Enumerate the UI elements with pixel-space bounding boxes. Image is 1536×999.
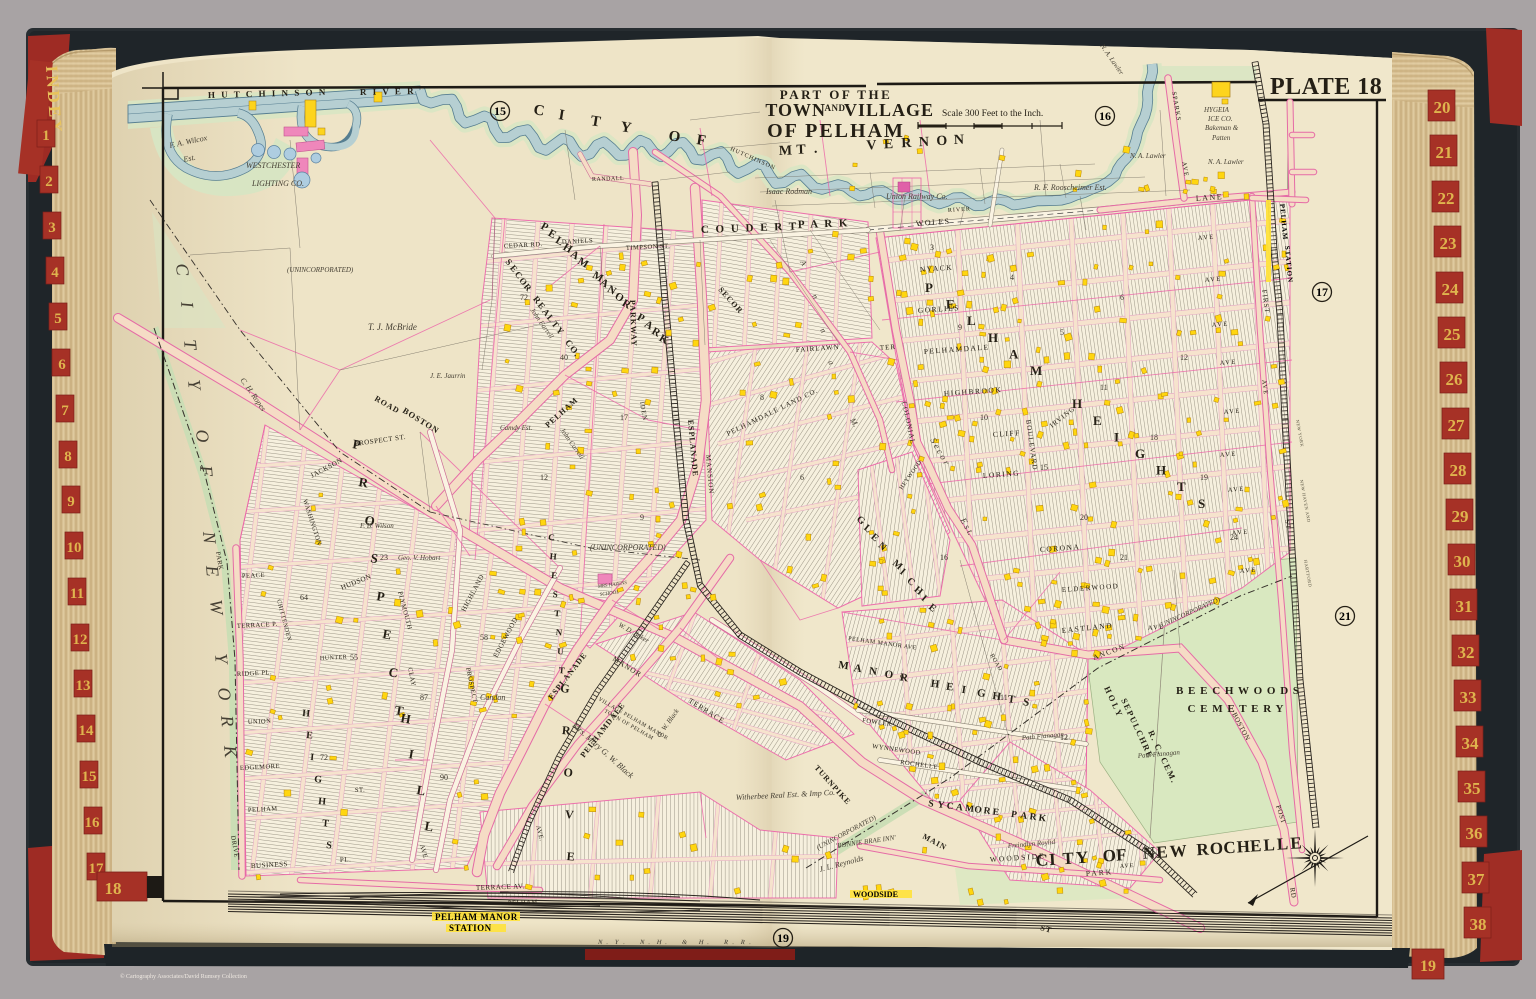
svg-text:AVE: AVE: [1205, 276, 1223, 284]
svg-text:AVE: AVE: [1232, 529, 1250, 537]
svg-text:AVE: AVE: [1220, 451, 1238, 459]
svg-text:4: 4: [51, 265, 59, 281]
svg-text:M: M: [1030, 363, 1042, 378]
svg-text:4: 4: [1010, 273, 1014, 282]
svg-text:A: A: [1009, 346, 1019, 361]
svg-text:36: 36: [1466, 824, 1483, 843]
svg-text:H: H: [1156, 463, 1166, 478]
svg-text:AVE: AVE: [1120, 863, 1135, 870]
svg-text:RANDALL: RANDALL: [592, 176, 624, 183]
svg-text:N: N: [954, 133, 965, 148]
svg-text:20: 20: [1434, 98, 1451, 117]
svg-text:L: L: [967, 313, 976, 328]
svg-text:R: R: [217, 714, 238, 728]
svg-text:PL.: PL.: [340, 855, 352, 864]
svg-text:10: 10: [67, 540, 82, 556]
svg-text:9: 9: [67, 494, 75, 510]
svg-text:26: 26: [1446, 370, 1463, 389]
svg-text:11: 11: [70, 586, 84, 602]
svg-text:I: I: [1114, 429, 1119, 444]
svg-text:8: 8: [760, 393, 764, 402]
svg-text:12: 12: [540, 473, 548, 482]
svg-text:O: O: [214, 687, 235, 702]
svg-text:15: 15: [82, 769, 97, 785]
svg-text:27: 27: [1448, 416, 1466, 435]
svg-text:3: 3: [48, 220, 56, 236]
svg-text:F. B. Wilson: F. B. Wilson: [359, 522, 394, 530]
svg-text:R. F. Rooscheimer Est.: R. F. Rooscheimer Est.: [1033, 183, 1107, 192]
svg-text:LIGHTING CO.: LIGHTING CO.: [251, 179, 304, 188]
svg-text:T: T: [796, 143, 807, 158]
svg-text:T: T: [1062, 849, 1075, 869]
svg-text:(UNINCORPORATED): (UNINCORPORATED): [287, 266, 354, 274]
svg-text:24: 24: [1442, 280, 1460, 299]
svg-text:17: 17: [620, 413, 628, 422]
svg-text:72: 72: [320, 753, 328, 762]
svg-text:H: H: [302, 708, 311, 720]
svg-text:9: 9: [958, 323, 962, 332]
svg-text:R I V E R: R I V E R: [360, 86, 416, 97]
svg-text:Scale 300 Feet to the Inch.: Scale 300 Feet to the Inch.: [942, 109, 1043, 119]
svg-text:10: 10: [980, 413, 988, 422]
svg-text:9: 9: [640, 513, 644, 522]
svg-text:© Cartography Associates/David: © Cartography Associates/David Rumsey Co…: [120, 973, 247, 980]
svg-text:M: M: [779, 144, 793, 159]
svg-text:N. A. Lawler: N. A. Lawler: [1207, 158, 1244, 166]
svg-text:.: .: [814, 142, 818, 157]
svg-text:T: T: [554, 608, 561, 618]
svg-text:R: R: [901, 136, 913, 151]
svg-text:(UNINCORPORATED): (UNINCORPORATED): [590, 543, 666, 552]
svg-text:E: E: [306, 730, 314, 742]
svg-text:AVE: AVE: [1212, 321, 1230, 329]
svg-text:WESTCHESTER: WESTCHESTER: [246, 161, 300, 170]
svg-text:PELHAM MANOR: PELHAM MANOR: [435, 912, 518, 922]
svg-text:H: H: [698, 939, 704, 946]
svg-text:23: 23: [380, 553, 388, 562]
svg-text:PLATE 18: PLATE 18: [1270, 74, 1382, 100]
svg-text:33: 33: [1460, 688, 1477, 707]
svg-text:O: O: [667, 128, 681, 146]
svg-text:AVE: AVE: [1224, 408, 1242, 416]
svg-text:E: E: [1156, 842, 1168, 862]
svg-text:L: L: [1263, 835, 1275, 855]
svg-text:TERRACE AV.: TERRACE AV.: [476, 882, 525, 892]
svg-text:19: 19: [1200, 473, 1208, 482]
svg-text:PELHAM: PELHAM: [508, 899, 538, 907]
svg-text:20: 20: [1080, 513, 1088, 522]
svg-text:P A R K: P A R K: [798, 217, 850, 231]
svg-text:25: 25: [1444, 325, 1461, 344]
svg-text:38: 38: [1470, 915, 1487, 934]
svg-text:5: 5: [54, 311, 62, 327]
svg-text:6: 6: [1120, 293, 1124, 302]
svg-text:AVE: AVE: [1228, 486, 1246, 494]
svg-text:HYGEIA: HYGEIA: [1203, 106, 1230, 114]
svg-text:N: N: [919, 135, 930, 150]
svg-text:18: 18: [1150, 433, 1158, 442]
svg-text:TER: TER: [880, 343, 897, 352]
svg-text:34: 34: [1462, 734, 1480, 753]
svg-text:R: R: [561, 723, 571, 738]
svg-text:N. A. Lawler: N. A. Lawler: [1129, 152, 1166, 160]
svg-text:Union Railway Co.: Union Railway Co.: [886, 192, 948, 201]
svg-text:G: G: [314, 774, 323, 786]
svg-text:35: 35: [1464, 779, 1481, 798]
svg-text:Isaac Rodman: Isaac Rodman: [765, 187, 812, 196]
svg-text:12: 12: [1180, 353, 1188, 362]
svg-text:UNION: UNION: [248, 718, 272, 726]
svg-text:15: 15: [1040, 463, 1048, 472]
svg-text:E: E: [884, 137, 894, 152]
svg-text:V: V: [866, 138, 877, 153]
svg-text:16: 16: [1099, 109, 1111, 123]
svg-text:R: R: [1196, 840, 1210, 860]
svg-text:1: 1: [42, 128, 50, 144]
svg-text:19: 19: [777, 931, 789, 945]
svg-text:13: 13: [76, 678, 91, 694]
svg-text:21: 21: [1436, 143, 1453, 162]
svg-text:12: 12: [73, 632, 88, 648]
svg-text:H: H: [988, 330, 998, 345]
svg-text:V: V: [565, 807, 575, 822]
svg-text:ST.: ST.: [355, 786, 366, 794]
svg-text:WOODSIDE: WOODSIDE: [853, 890, 898, 899]
svg-text:18: 18: [105, 879, 122, 898]
svg-text:21: 21: [1120, 553, 1128, 562]
svg-text:H: H: [318, 796, 327, 808]
svg-text:PEACE: PEACE: [242, 572, 265, 580]
svg-text:VILLAGE: VILLAGE: [844, 100, 934, 120]
svg-text:R: R: [723, 939, 728, 946]
svg-text:B E E C H W O O D S: B E E C H W O O D S: [1176, 685, 1300, 697]
svg-text:22: 22: [1438, 189, 1455, 208]
svg-text:G: G: [1135, 446, 1145, 461]
svg-text:3: 3: [930, 243, 934, 252]
svg-text:F: F: [1116, 845, 1127, 865]
svg-text:O: O: [936, 134, 948, 149]
svg-text:90: 90: [440, 773, 448, 782]
svg-text:AVE: AVE: [1220, 359, 1238, 367]
svg-text:O: O: [563, 765, 574, 780]
svg-text:31: 31: [1456, 597, 1473, 616]
svg-text:19: 19: [1420, 958, 1436, 975]
svg-text:21: 21: [1339, 609, 1351, 623]
svg-text:E: E: [551, 570, 558, 580]
svg-text:AVE: AVE: [1198, 234, 1216, 242]
svg-text:E: E: [1290, 833, 1302, 853]
svg-text:Bakeman &: Bakeman &: [1205, 124, 1239, 132]
svg-text:Y: Y: [1075, 848, 1088, 868]
svg-text:23: 23: [1440, 234, 1457, 253]
svg-text:6: 6: [800, 473, 804, 482]
svg-text:28: 28: [1450, 461, 1467, 480]
svg-text:S: S: [552, 589, 558, 599]
svg-text:AVE: AVE: [1240, 567, 1258, 575]
svg-text:16: 16: [85, 815, 101, 831]
svg-text:E: E: [1093, 413, 1102, 428]
svg-text:C: C: [548, 532, 555, 543]
svg-text:W: W: [1169, 841, 1187, 861]
svg-text:T. J. McBride: T. J. McBride: [368, 322, 417, 332]
svg-text:E: E: [1250, 836, 1262, 856]
svg-text:N: N: [1142, 843, 1156, 863]
svg-text:AND: AND: [825, 103, 846, 113]
svg-text:14: 14: [79, 723, 95, 739]
svg-text:O: O: [974, 805, 983, 816]
svg-text:S: S: [1198, 496, 1205, 511]
svg-text:R: R: [740, 939, 745, 946]
svg-text:O: O: [1102, 846, 1116, 866]
svg-text:H: H: [549, 551, 557, 562]
svg-text:C: C: [1223, 838, 1236, 858]
svg-text:87: 87: [420, 693, 428, 702]
svg-text:N: N: [639, 939, 645, 946]
svg-text:STATION: STATION: [449, 923, 492, 933]
svg-text:16: 16: [940, 553, 948, 562]
svg-text:Geo. V. Hobart: Geo. V. Hobart: [398, 554, 441, 562]
svg-text:PARKWAY: PARKWAY: [628, 300, 639, 347]
svg-text:7: 7: [61, 403, 69, 419]
svg-text:Camdy Est.: Camdy Est.: [500, 424, 533, 432]
svg-text:A: A: [853, 662, 863, 675]
svg-text:LANE: LANE: [1196, 192, 1224, 203]
svg-text:2: 2: [45, 174, 53, 190]
svg-text:H: H: [656, 939, 662, 946]
svg-text:J. E. Jaurrin: J. E. Jaurrin: [430, 372, 466, 380]
svg-text:8: 8: [64, 449, 72, 465]
svg-text:5: 5: [1060, 328, 1064, 337]
svg-text:N: N: [868, 665, 878, 678]
svg-text:E: E: [566, 849, 575, 864]
svg-text:32: 32: [1458, 643, 1475, 662]
svg-text:Candon: Candon: [480, 693, 505, 702]
svg-text:N: N: [597, 939, 603, 946]
svg-text:P: P: [925, 280, 933, 295]
svg-text:T: T: [322, 818, 330, 830]
svg-text:29: 29: [1452, 507, 1469, 526]
svg-text:6: 6: [58, 357, 66, 373]
svg-text:40: 40: [560, 353, 568, 362]
svg-text:58: 58: [480, 633, 488, 642]
svg-text:T: T: [1177, 479, 1186, 494]
svg-text:TOWN: TOWN: [765, 100, 826, 120]
svg-text:H: H: [1236, 837, 1250, 857]
svg-text:ICE CO.: ICE CO.: [1207, 115, 1233, 123]
svg-text:37: 37: [1468, 870, 1486, 889]
svg-text:64: 64: [300, 593, 308, 602]
svg-text:PARK: PARK: [1086, 867, 1114, 878]
svg-text:O: O: [192, 429, 213, 444]
svg-text:17: 17: [1316, 285, 1328, 299]
svg-text:15: 15: [494, 104, 506, 118]
svg-text:55: 55: [350, 653, 358, 662]
svg-text:11: 11: [1100, 383, 1108, 392]
svg-text:Patten: Patten: [1211, 134, 1231, 142]
svg-text:O: O: [1209, 839, 1223, 859]
svg-text:L: L: [1276, 834, 1288, 854]
svg-text:30: 30: [1454, 552, 1471, 571]
